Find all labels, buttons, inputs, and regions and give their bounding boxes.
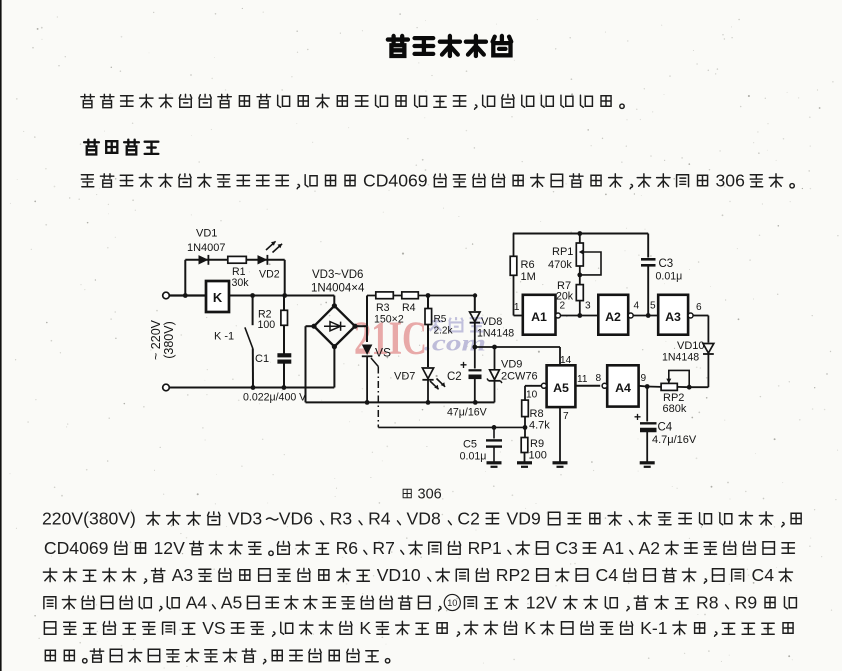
svg-text:RP1: RP1 [468,538,502,558]
svg-text:C1: C1 [255,353,269,365]
svg-text:+: + [460,358,467,372]
svg-text:CD4069: CD4069 [363,171,428,191]
svg-text:0.01μ: 0.01μ [656,271,683,283]
svg-text:RP1: RP1 [552,246,573,258]
svg-text:8: 8 [596,373,602,384]
svg-text:+: + [634,410,641,424]
svg-text:150×2: 150×2 [374,314,404,326]
svg-text:VD9: VD9 [507,509,541,529]
svg-text:(380V): (380V) [162,321,176,359]
svg-text:A4: A4 [186,593,208,613]
svg-text:VD2: VD2 [259,269,280,281]
svg-text:4.7μ/16V: 4.7μ/16V [652,434,697,446]
svg-text:K-1: K-1 [640,618,667,638]
svg-text:1N4004×4: 1N4004×4 [311,283,365,295]
svg-text:5: 5 [650,301,656,312]
svg-text:C4: C4 [752,565,775,585]
svg-text:R4: R4 [402,302,416,314]
svg-text:R6: R6 [336,538,359,558]
svg-text:10: 10 [526,390,538,401]
svg-text:6: 6 [696,302,702,313]
svg-text:C3: C3 [659,258,674,270]
svg-text:A2: A2 [639,538,661,558]
svg-text:100: 100 [258,319,276,331]
svg-text:A2: A2 [605,310,621,324]
svg-text:10: 10 [447,598,457,608]
svg-text:R9: R9 [530,438,544,450]
svg-text:100: 100 [529,450,547,462]
svg-text:VD7: VD7 [394,371,415,383]
svg-text:1N4148: 1N4148 [477,328,514,340]
svg-text:C3: C3 [555,538,578,558]
svg-text:C2: C2 [447,371,462,383]
svg-text:14: 14 [560,355,572,366]
svg-text:C2: C2 [457,509,480,529]
svg-text:3: 3 [585,301,591,312]
svg-text:CD4069: CD4069 [44,538,109,558]
svg-text:11: 11 [577,374,588,385]
svg-text:C5: C5 [463,439,477,451]
svg-text:7: 7 [563,411,569,422]
svg-text:A1: A1 [603,538,625,558]
svg-text:4.7k: 4.7k [529,420,550,432]
svg-text:A3: A3 [665,310,681,324]
svg-text:12V: 12V [154,538,186,558]
svg-text:R7: R7 [372,538,395,558]
svg-text:2: 2 [560,301,566,312]
svg-text:VD8: VD8 [407,509,441,529]
svg-text:12V: 12V [526,593,558,613]
svg-text:R3: R3 [330,509,353,529]
svg-text:4: 4 [634,301,640,312]
svg-text:1M: 1M [521,271,536,283]
svg-text:2.2k: 2.2k [434,326,454,337]
svg-text:R6: R6 [521,259,535,271]
svg-text:0.01μ: 0.01μ [460,451,487,463]
svg-text:A4: A4 [615,381,631,395]
svg-text:K: K [213,290,223,305]
svg-text:306: 306 [418,487,442,503]
svg-text:K: K [359,618,371,638]
svg-text:2CW76: 2CW76 [501,371,538,383]
svg-text:R8: R8 [530,408,544,420]
svg-text:VD10: VD10 [677,340,705,352]
svg-text:1N4148: 1N4148 [662,352,699,364]
svg-text:VD1: VD1 [196,228,217,240]
svg-text:1: 1 [514,302,520,313]
svg-text:VD8: VD8 [481,316,502,328]
svg-text:A5: A5 [221,593,243,613]
svg-text:R5: R5 [434,314,447,325]
svg-text:470k: 470k [548,259,572,271]
svg-text:47μ/16V: 47μ/16V [447,407,488,419]
svg-text:1N4007: 1N4007 [187,242,226,254]
svg-text:A5: A5 [553,381,569,395]
svg-text:30k: 30k [232,277,250,289]
svg-text:R9: R9 [735,593,758,613]
svg-text:R3: R3 [376,302,390,314]
svg-text:K: K [524,618,536,638]
svg-text:VD6: VD6 [279,509,313,529]
svg-text:R8: R8 [696,593,719,613]
svg-text:VD10: VD10 [377,565,421,585]
svg-text:9: 9 [641,373,647,384]
svg-text:VD3~VD6: VD3~VD6 [312,269,363,281]
svg-text:VD3: VD3 [228,509,262,529]
svg-text:680k: 680k [663,403,687,415]
svg-text:K -1: K -1 [214,331,234,343]
svg-text:~ 220V: ~ 220V [149,319,163,360]
svg-text:VS: VS [202,618,225,638]
svg-text:A3: A3 [172,565,194,585]
svg-text:VS: VS [375,346,391,360]
svg-text:220V(380V): 220V(380V) [42,509,136,529]
svg-text:0.022μ/400 V: 0.022μ/400 V [243,392,307,404]
svg-text:RP2: RP2 [496,565,530,585]
svg-text:306: 306 [716,171,746,191]
svg-text:VD9: VD9 [501,359,522,371]
svg-text:C4: C4 [658,422,673,434]
svg-text:A1: A1 [531,310,547,324]
svg-text:C4: C4 [596,565,619,585]
svg-text:R4: R4 [368,509,391,529]
